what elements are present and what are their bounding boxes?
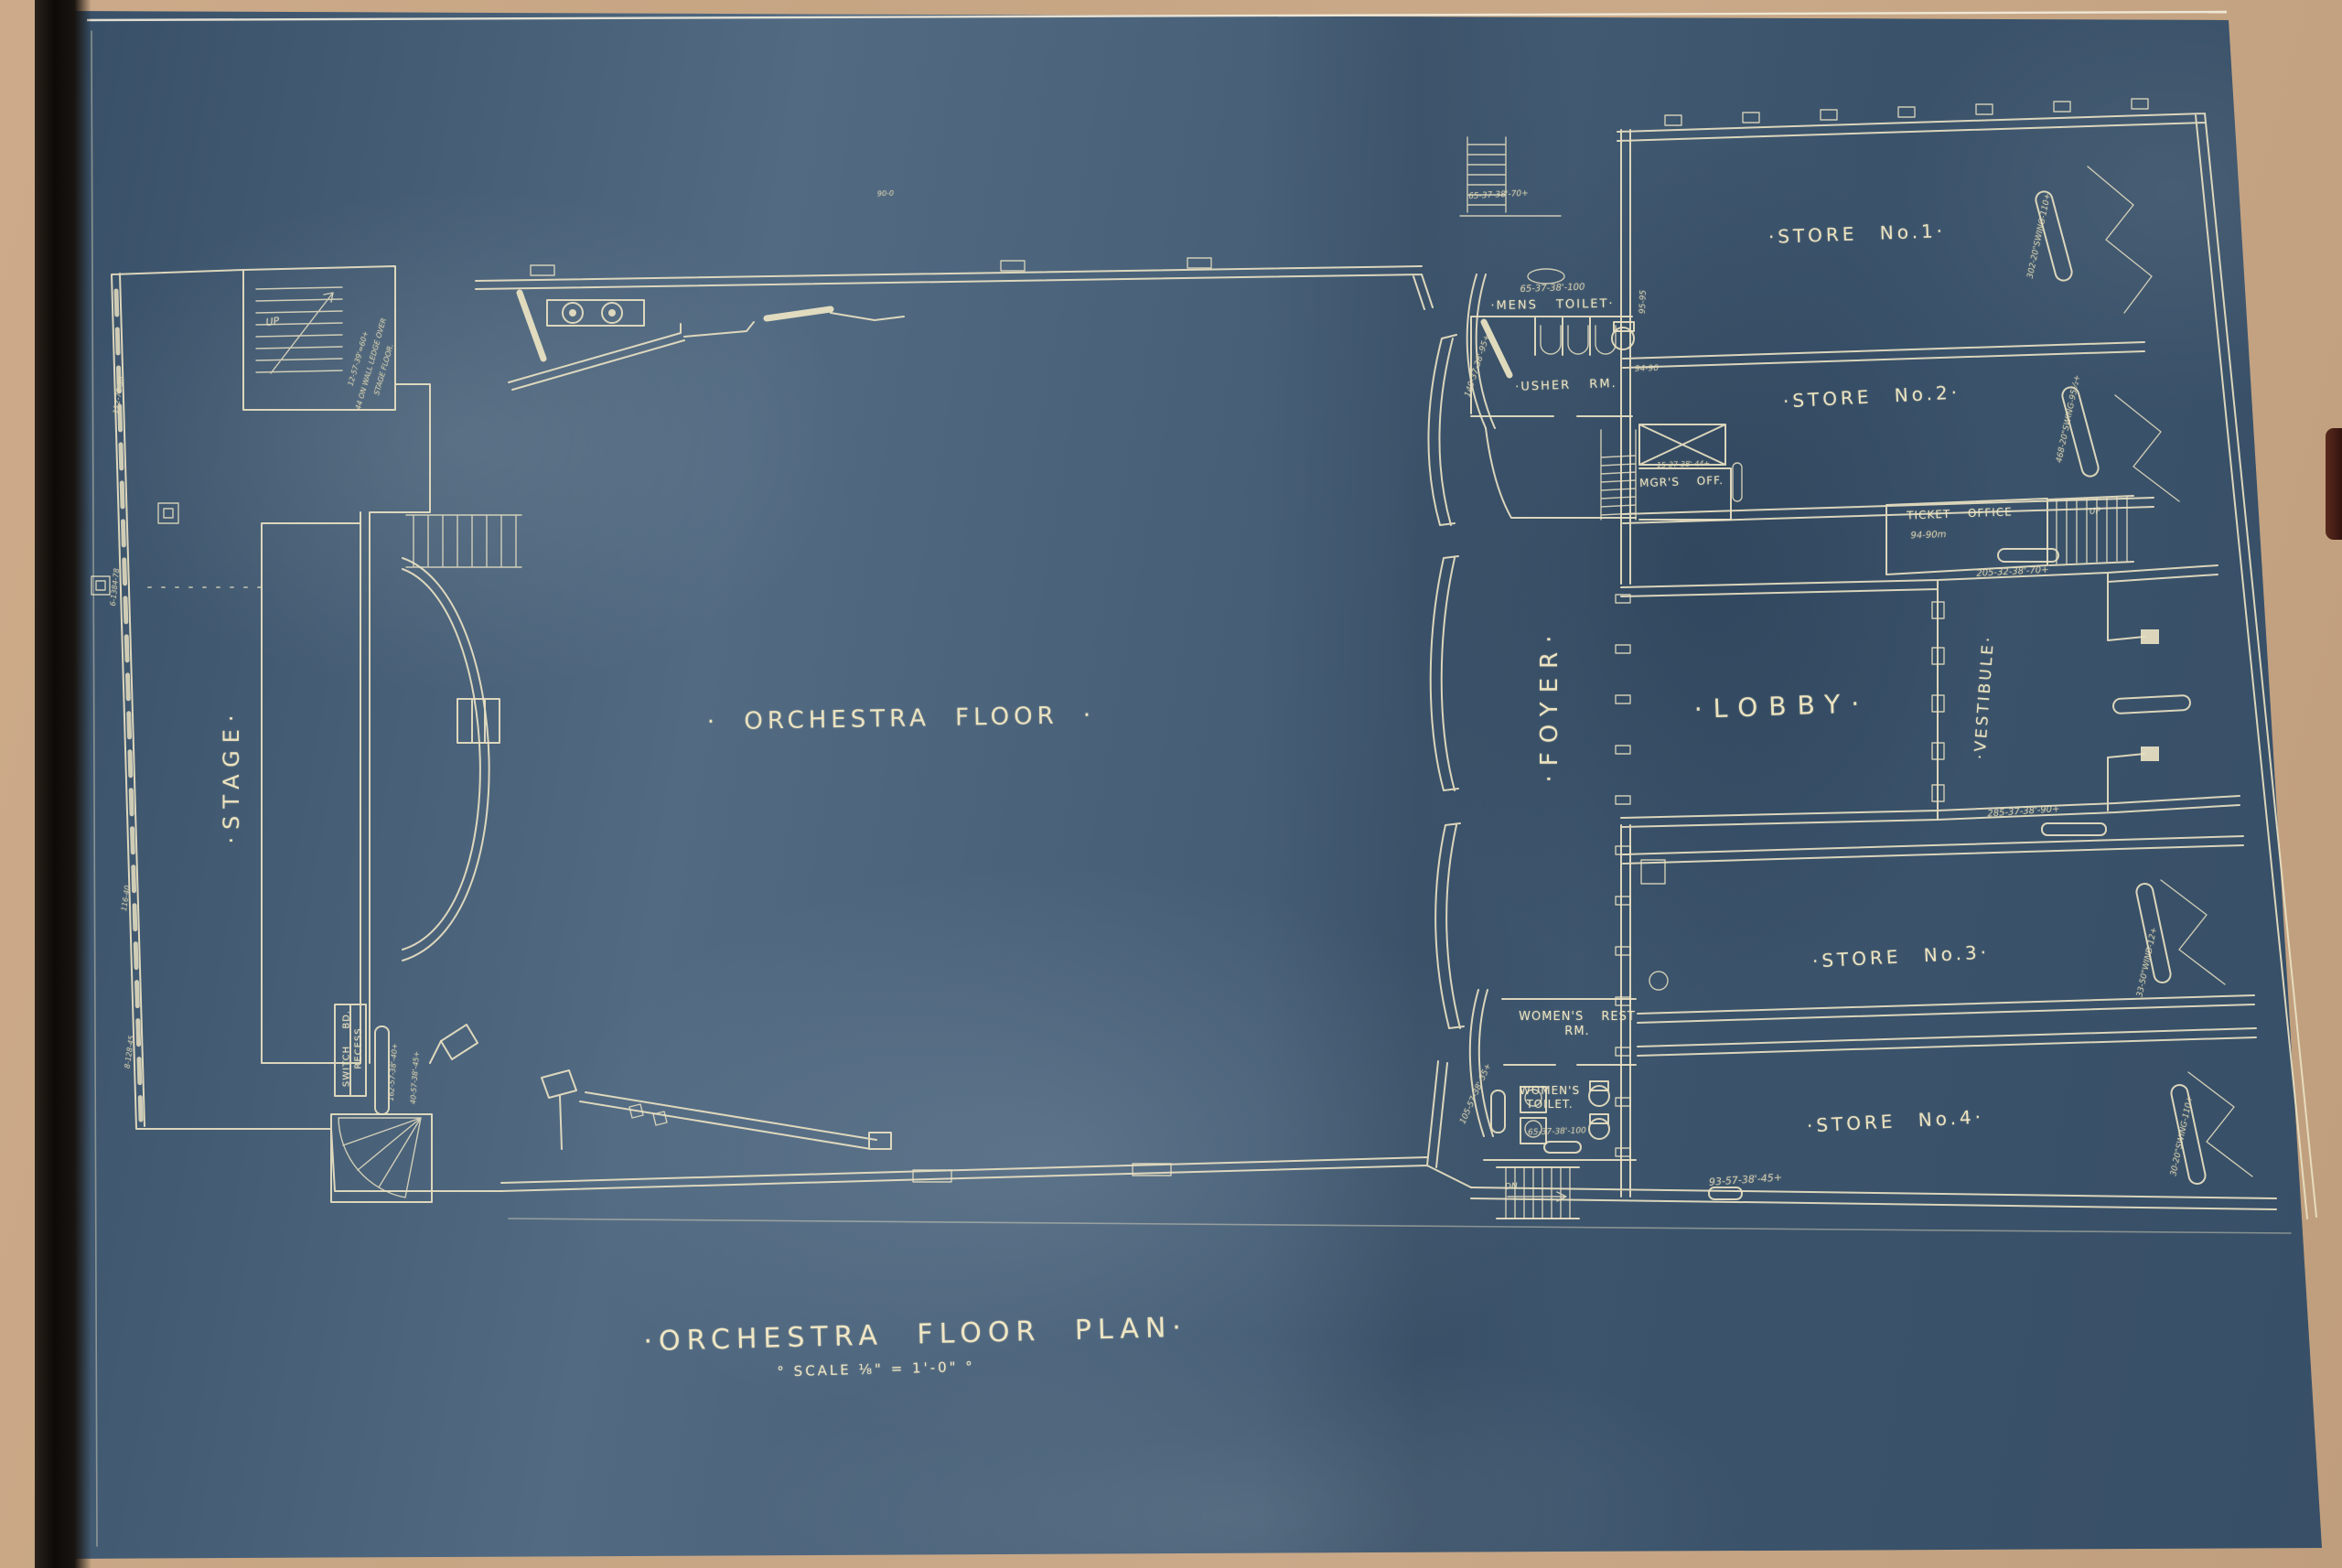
label-store-no4: ·STORE No.4· xyxy=(1806,1105,1984,1137)
label-switchboard-recess: SWITCH BD. RECESS xyxy=(342,1010,365,1087)
dim-switchbd-1: 162-57-38'-40+ xyxy=(387,1043,400,1101)
dim-stage-wall-3: 116-40 xyxy=(120,885,133,911)
label-mgrs-off: MGR'S OFF. xyxy=(1639,474,1724,490)
label-dn-womens-stair: DN xyxy=(1505,1182,1518,1193)
dim-stage-wall-4: 8-128-45 xyxy=(124,1035,137,1069)
label-up-ticket-stair: UP xyxy=(2090,507,2101,518)
dim-mens-toilet: 65-37-38'-100 xyxy=(1520,283,1585,296)
dim-womens-curve: 105-57-38'-35+ xyxy=(1458,1062,1494,1126)
dim-stage-wall-2: 6-1384-78 xyxy=(109,568,122,607)
label-stage: ·STAGE· xyxy=(218,707,245,843)
dim-store4: 93-57-38'-45+ xyxy=(1709,1171,1783,1188)
label-lobby: ·LOBBY· xyxy=(1693,687,1871,725)
dim-switchbd-2: 40-57-38'-45+ xyxy=(409,1051,422,1105)
label-foyer: ·FOYER· xyxy=(1535,627,1565,783)
dim-stage-wall-1: 112-78-38 xyxy=(112,376,126,414)
dim-mgrs-off: 15-27-38'-44+ xyxy=(1657,459,1711,470)
dim-ticket-office: 94-90m xyxy=(1910,530,1946,542)
dim-store2-toilet: 94-90 xyxy=(1635,364,1660,375)
dim-foyer-curve-top: 140-37-38'-95+ xyxy=(1464,333,1494,398)
blueprint-photo: ·STAGE·· ORCHESTRA FLOOR ··FOYER··LOBBY·… xyxy=(0,0,2342,1568)
label-orchestra-floor: · ORCHESTRA FLOOR · xyxy=(707,701,1096,737)
dim-store1-front: 302-20"SWING-110+ xyxy=(2026,192,2055,279)
label-store-no3: ·STORE No.3· xyxy=(1811,940,1990,972)
dim-vestibule: 285-37-38'-90+ xyxy=(1987,804,2060,821)
label-store-no1: ·STORE No.1· xyxy=(1768,220,1947,249)
dim-womens-toilet: 65-37-38'-100 xyxy=(1528,1126,1586,1138)
label-womens-rest-rm: WOMEN'S REST RM. xyxy=(1519,1010,1636,1040)
dim-foyer-top: 65-37-38'-70+ xyxy=(1468,189,1529,203)
dim-store4-front: 30-20"SWING-110+ xyxy=(2169,1095,2197,1177)
label-store-no2: ·STORE No.2· xyxy=(1782,381,1961,413)
dim-aud-top: 90-0 xyxy=(877,189,894,199)
label-vestibule: ·VESTIBULE· xyxy=(1971,634,2000,760)
label-up-stage-stair: UP xyxy=(265,315,280,329)
label-mens-toilet: ·MENS TOILET· xyxy=(1490,297,1614,315)
dim-store2-front: 468-20"SWING-95½+ xyxy=(2055,374,2083,464)
dim-below-ticket: 205-32-38'-70+ xyxy=(1976,565,2049,581)
label-womens-toilet: WOMEN'S TOILET. xyxy=(1520,1084,1580,1112)
dim-store3-front: 33-50"WIND-12+ xyxy=(2135,927,2160,998)
label-usher-rm: ·USHER RM. xyxy=(1515,377,1617,395)
label-ticket-office: TICKET OFFICE xyxy=(1907,505,2013,522)
dim-store-wall: 95-95 xyxy=(1638,290,1649,315)
